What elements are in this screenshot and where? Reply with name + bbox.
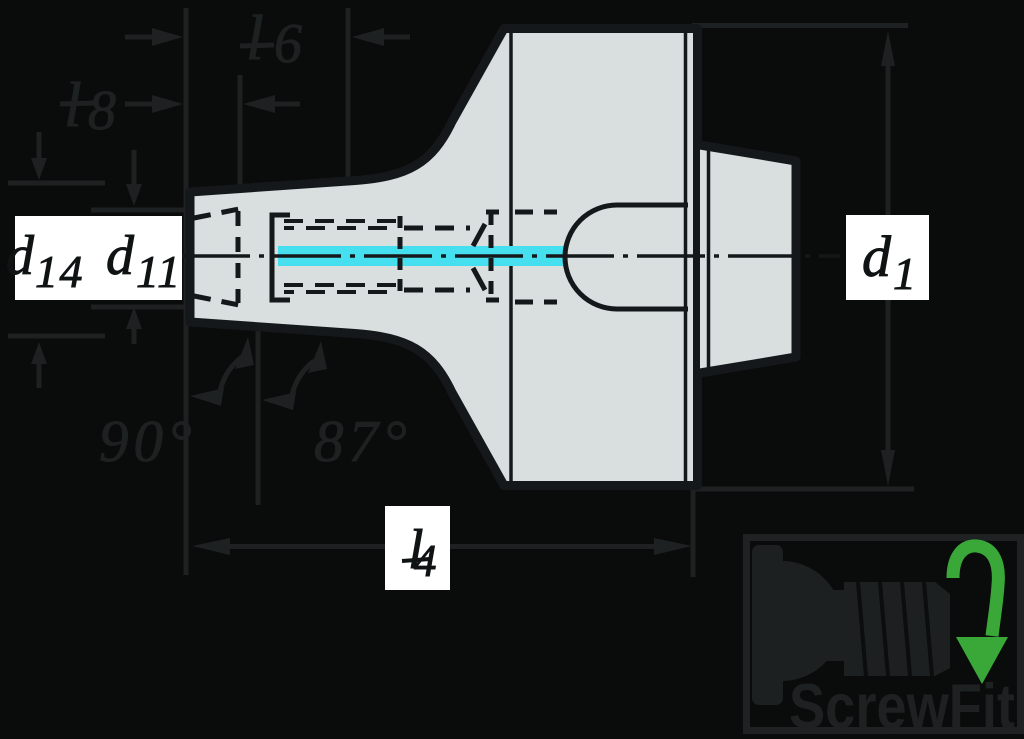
svg-text:14: 14	[35, 246, 84, 297]
svg-text:d: d	[106, 225, 135, 287]
svg-text:1: 1	[893, 248, 916, 299]
svg-text:11: 11	[136, 246, 182, 297]
svg-text:8: 8	[88, 80, 116, 142]
svg-text:ScrewFit: ScrewFit	[789, 672, 1015, 739]
svg-text:6: 6	[274, 13, 302, 75]
svg-text:l: l	[246, 2, 264, 73]
svg-text:87°: 87°	[314, 408, 412, 474]
svg-text:d: d	[862, 224, 892, 289]
svg-text:d: d	[6, 225, 35, 287]
svg-text:90°: 90°	[99, 408, 197, 474]
